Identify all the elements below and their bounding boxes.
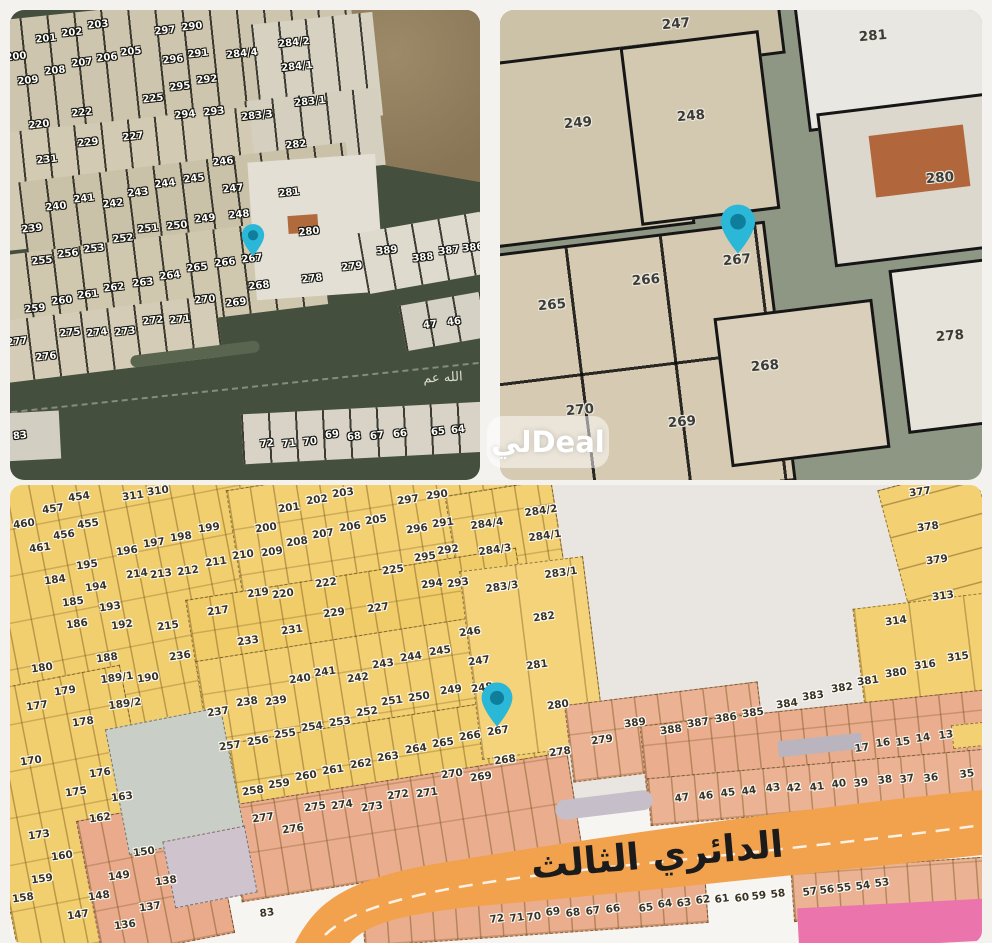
parcel-number: 220 — [28, 118, 50, 131]
parcel-number: 53 — [874, 876, 890, 890]
map-block — [399, 291, 480, 352]
map-block — [869, 124, 971, 197]
parcel-number: 250 — [166, 219, 188, 232]
parcel-number: 386 — [462, 241, 480, 254]
parcel-number: 72 — [489, 912, 505, 926]
parcel-number: 17 — [854, 741, 870, 755]
parcel-number: 264 — [159, 269, 181, 282]
parcel-number: 83 — [259, 906, 275, 920]
parcel-number: 280 — [925, 169, 954, 187]
parcel-number: 251 — [137, 222, 159, 235]
cadastral-map[interactable]: 4544574554564614603113101961971981991951… — [10, 485, 982, 943]
parcel-number: 61 — [714, 892, 730, 906]
parcel-number: 56 — [819, 883, 835, 897]
parcel-number: 260 — [51, 294, 73, 307]
parcel-number: 69 — [545, 905, 561, 919]
parcel-number: 60 — [734, 891, 750, 905]
parcel-number: 252 — [112, 232, 134, 245]
watermark-badge: ليDeal — [487, 416, 609, 468]
parcel-number: 200 — [10, 50, 27, 63]
map-block — [713, 299, 890, 467]
parcel-number: 281 — [278, 186, 300, 199]
parcel-number: 247 — [661, 15, 690, 33]
parcel-number: 268 — [750, 357, 779, 375]
parcel-number: 55 — [836, 881, 852, 895]
parcel-number: 72 — [260, 438, 275, 450]
parcel-number: 239 — [21, 222, 43, 235]
parcel-number: 293 — [203, 105, 225, 118]
parcel-number: 58 — [770, 887, 786, 901]
parcel-number: 71 — [282, 438, 297, 450]
parcel-number: 205 — [120, 45, 142, 58]
parcel-number: 202 — [61, 26, 83, 39]
map-block — [951, 721, 982, 749]
parcel-number: 268 — [248, 279, 270, 292]
map-block — [620, 30, 781, 226]
parcel-number: 266 — [631, 271, 660, 289]
parcel-number: 16 — [875, 736, 891, 750]
parcel-number: 389 — [376, 244, 398, 257]
parcel-number: 255 — [31, 254, 53, 267]
parcel-number: 256 — [57, 247, 79, 260]
parcel-number: 294 — [174, 108, 196, 121]
parcel-number: 65 — [638, 901, 654, 915]
parcel-number: 225 — [142, 92, 164, 105]
parcel-number: 13 — [938, 728, 954, 742]
parcel-number: 269 — [667, 413, 696, 431]
parcel-number: 39 — [853, 776, 869, 790]
parcel-number: 46 — [447, 316, 462, 328]
parcel-number: 70 — [303, 436, 318, 448]
parcel-number: 38 — [877, 773, 893, 787]
parcel-number: 271 — [169, 313, 191, 326]
parcel-number: 66 — [605, 902, 621, 916]
parcel-number: 253 — [83, 242, 105, 255]
parcel-number: 249 — [563, 114, 592, 132]
parcel-number: 281 — [858, 27, 887, 45]
parcel-number: 14 — [915, 731, 931, 745]
parcel-number: 201 — [35, 32, 57, 45]
parcel-number: 276 — [35, 350, 57, 363]
parcel-number: 243 — [127, 186, 149, 199]
location-pin[interactable] — [479, 681, 515, 732]
parcel-number: 241 — [73, 192, 95, 205]
parcel-number: 208 — [44, 64, 66, 77]
parcel-number: 295 — [169, 80, 191, 93]
parcel-number: 388 — [412, 251, 434, 264]
parcel-number: 249 — [194, 212, 216, 225]
parcel-number: 71 — [509, 911, 525, 925]
parcel-number: 269 — [225, 296, 247, 309]
parcel-number: 67 — [585, 904, 601, 918]
parcel-number: 35 — [959, 767, 975, 781]
parcel-number: 68 — [565, 906, 581, 920]
watermark-text: ليDeal — [491, 425, 605, 459]
parcel-number: 46 — [698, 789, 714, 803]
satellite-closeup-map[interactable]: 247281249248280265266267268269270278 — [500, 10, 982, 480]
map-block — [888, 255, 982, 434]
satellite-overview-map[interactable]: 201202203297290284/220020820720620529629… — [10, 10, 480, 480]
parcel-number: 263 — [132, 276, 154, 289]
parcel-number: 47 — [674, 791, 690, 805]
parcel-number: 280 — [298, 225, 320, 238]
parcel-number: 68 — [347, 431, 362, 443]
location-pin[interactable] — [240, 223, 266, 261]
parcel-number: 47 — [423, 319, 438, 331]
parcel-number: 387 — [438, 244, 460, 257]
parcel-number: 54 — [855, 879, 871, 893]
parcel-number: 265 — [537, 296, 566, 314]
parcel-number: 37 — [899, 772, 915, 786]
parcel-number: 270 — [194, 293, 216, 306]
parcel-number: 41 — [809, 780, 825, 794]
parcel-number: 244 — [154, 177, 176, 190]
parcel-number: 69 — [325, 429, 340, 441]
parcel-number: 290 — [181, 20, 203, 33]
parcel-number: 65 — [431, 426, 446, 438]
parcel-number: 40 — [831, 777, 847, 791]
parcel-number: 231 — [36, 153, 58, 166]
parcel-number: 209 — [17, 74, 39, 87]
parcel-number: 229 — [77, 136, 99, 149]
parcel-number: 36 — [923, 771, 939, 785]
parcel-number: 64 — [451, 424, 466, 436]
parcel-number: 206 — [96, 51, 118, 64]
parcel-number: 248 — [228, 208, 250, 221]
location-pin[interactable] — [718, 203, 758, 259]
parcel-number: 275 — [59, 326, 81, 339]
parcel-number: 247 — [222, 182, 244, 195]
parcel-number: 245 — [183, 172, 205, 185]
parcel-number: 278 — [301, 272, 323, 285]
parcel-number: 279 — [341, 260, 363, 273]
parcel-number: 266 — [214, 256, 236, 269]
listing-map-composite: 201202203297290284/220020820720620529629… — [0, 0, 992, 943]
parcel-number: 297 — [154, 24, 176, 37]
parcel-number: 67 — [370, 430, 385, 442]
parcel-number: 259 — [24, 302, 46, 315]
parcel-number: 203 — [87, 18, 109, 31]
parcel-number: 227 — [122, 130, 144, 143]
parcel-number: 43 — [765, 781, 781, 795]
parcel-number: 44 — [741, 784, 757, 798]
parcel-number: 222 — [71, 106, 93, 119]
parcel-number: 291 — [187, 47, 209, 60]
parcel-number: 282 — [285, 138, 307, 151]
parcel-number: 59 — [751, 889, 767, 903]
parcel-number: 70 — [526, 910, 542, 924]
parcel-number: 274 — [86, 326, 108, 339]
parcel-number: 42 — [786, 781, 802, 795]
parcel-number: 83 — [13, 430, 28, 442]
parcel-number: 66 — [393, 428, 408, 440]
parcel-number: 265 — [186, 261, 208, 274]
parcel-number: 64 — [657, 897, 673, 911]
parcel-number: 207 — [71, 56, 93, 69]
parcel-number: 15 — [895, 735, 911, 749]
parcel-number: 273 — [114, 325, 136, 338]
parcel-number: 246 — [212, 155, 234, 168]
parcel-number: 242 — [102, 197, 124, 210]
parcel-number: 45 — [720, 786, 736, 800]
parcel-number: 272 — [142, 314, 164, 327]
parcel-number: 278 — [935, 327, 964, 345]
parcel-number: 292 — [196, 73, 218, 86]
parcel-number: 57 — [802, 885, 818, 899]
street-name-label: الله عم — [423, 369, 463, 386]
parcel-number: 261 — [77, 288, 99, 301]
parcel-number: 248 — [676, 107, 705, 125]
parcel-number: 277 — [10, 335, 28, 348]
parcel-number: 240 — [45, 200, 67, 213]
parcel-number: 296 — [162, 53, 184, 66]
parcel-number: 62 — [695, 893, 711, 907]
parcel-number: 262 — [103, 281, 125, 294]
parcel-number: 63 — [676, 896, 692, 910]
